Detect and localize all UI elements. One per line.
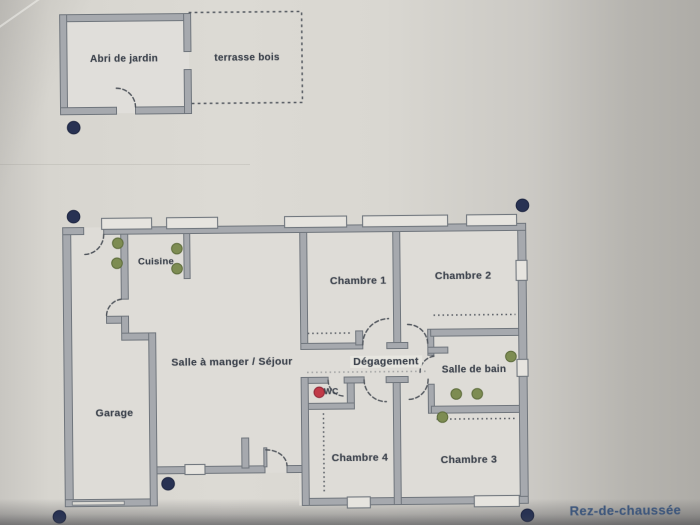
floor-plan: Abri de jardinterrasse boisCuisineChambr… <box>0 0 700 525</box>
room-label-chambre-1: Chambre 1 <box>330 275 387 288</box>
green-marker <box>172 243 183 254</box>
room-label-chambre-4: Chambre 4 <box>332 452 389 465</box>
navy-marker <box>67 121 80 134</box>
green-marker <box>451 389 462 400</box>
green-marker <box>112 258 123 269</box>
room-label-chambre-3: Chambre 3 <box>441 454 498 467</box>
green-marker <box>437 412 448 423</box>
photo-bottom-shadow <box>0 514 700 525</box>
navy-marker <box>162 477 175 490</box>
navy-marker <box>67 210 80 223</box>
floor-plan-photo: Abri de jardinterrasse boisCuisineChambr… <box>0 0 700 525</box>
room-label-sejour: Salle à manger / Séjour <box>171 356 292 369</box>
room-label-wc: WC <box>324 386 339 396</box>
terrace-door-leaf <box>264 448 267 467</box>
green-marker <box>112 238 123 249</box>
floor-plan-drawing <box>0 0 700 525</box>
green-marker <box>506 351 517 362</box>
garage-door <box>72 501 124 505</box>
room-label-cuisine: Cuisine <box>138 256 174 267</box>
room-label-abri-de-jardin: Abri de jardin <box>90 53 158 65</box>
navy-marker <box>516 199 529 212</box>
room-label-salle-de-bain: Salle de bain <box>442 364 506 376</box>
green-marker <box>472 388 483 399</box>
room-label-terrasse-bois: terrasse bois <box>214 52 280 64</box>
room-label-garage: Garage <box>96 407 134 419</box>
room-label-chambre-2: Chambre 2 <box>435 270 492 283</box>
room-label-degagement: Dégagement <box>350 355 422 368</box>
